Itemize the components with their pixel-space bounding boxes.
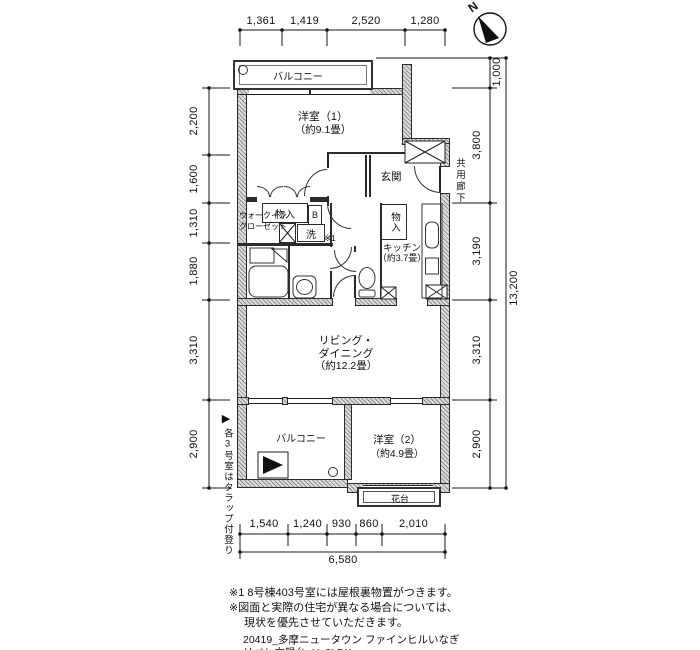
wall-mid-2 bbox=[355, 298, 397, 306]
hatch-marker-icon bbox=[258, 452, 288, 478]
dim-left-1: 1,600 bbox=[188, 157, 200, 201]
room-label-wic-2: クローゼット bbox=[239, 221, 287, 232]
dim-bottom-0: 1,540 bbox=[242, 518, 286, 530]
room-label-balcony-top: バルコニー bbox=[258, 68, 338, 83]
wash-label: 洗 bbox=[306, 226, 316, 241]
washbasin-icon bbox=[293, 276, 316, 298]
wall-balcony-rail bbox=[237, 479, 348, 488]
wall-bath-top bbox=[237, 243, 333, 246]
water-heater-box: B bbox=[308, 205, 322, 225]
sliding-door-bedroom2 bbox=[391, 398, 422, 404]
living-door-arc bbox=[333, 275, 355, 297]
room-label-living-size: （約12.2畳） bbox=[302, 358, 390, 373]
genkan-step-line-2 bbox=[369, 155, 371, 197]
storage-box-2: 物入 bbox=[381, 204, 407, 240]
dim-left-2: 1,310 bbox=[188, 201, 200, 245]
dim-right-2: 3,190 bbox=[471, 229, 483, 273]
dim-right-total: 13,200 bbox=[508, 262, 520, 314]
room-label-wic-1: ウォークイン bbox=[239, 210, 287, 221]
dim-left-3: 1,880 bbox=[188, 249, 200, 293]
footnote-2: ※図面と実際の住宅が異なる場合については、 bbox=[229, 599, 458, 615]
wall-bath-wash bbox=[288, 246, 290, 298]
wall-bedroom1-bottom-a bbox=[247, 197, 257, 202]
dim-left-4: 3,310 bbox=[188, 328, 200, 372]
wall-bedroom1-right-a bbox=[327, 152, 329, 168]
compass-icon bbox=[474, 13, 506, 45]
wall-ld-bottom-4 bbox=[422, 397, 450, 405]
dim-right-0: 1,000 bbox=[491, 50, 503, 94]
genkan-step-line-1 bbox=[365, 155, 367, 197]
bath-counter bbox=[250, 248, 274, 263]
bedroom1-door-arc bbox=[304, 169, 327, 196]
closet-door-arc-3 bbox=[284, 186, 297, 197]
room-label-kitchen-size: （約3.7畳） bbox=[372, 251, 432, 264]
wall-right-main bbox=[440, 193, 450, 488]
room-label-entrance: 玄関 bbox=[376, 169, 406, 184]
side-note-marker: ▶ bbox=[218, 412, 234, 425]
wall-ld-bottom-3 bbox=[332, 397, 391, 405]
dim-top-1: 1,419 bbox=[282, 15, 327, 27]
dim-left-5: 2,900 bbox=[188, 422, 200, 466]
dim-top-2: 2,520 bbox=[344, 15, 388, 27]
kitchen-sink-icon bbox=[426, 222, 439, 248]
room-label-flower-stand: 花台 bbox=[381, 492, 419, 505]
wall-mid-1 bbox=[237, 298, 333, 306]
storage-box-2-label: 物入 bbox=[387, 212, 401, 233]
water-heater-label: B bbox=[312, 210, 318, 220]
side-note-text: 各3号室はタラップ付登り bbox=[220, 428, 234, 606]
plan-title-line-2: リベレ向陽台_U_2LDK bbox=[243, 645, 352, 650]
floor-plan-page: 物入 B 洗 物入 bbox=[0, 0, 700, 650]
room-label-balcony-bottom: バルコニー bbox=[266, 430, 336, 445]
dim-bottom-3: 860 bbox=[348, 518, 390, 530]
footnote-3: 現状を優先させていただきます。 bbox=[244, 614, 408, 630]
dim-top-0: 1,361 bbox=[239, 15, 283, 27]
bath-door-triangle bbox=[272, 249, 287, 262]
dim-bottom-4: 2,010 bbox=[391, 518, 436, 530]
wall-left bbox=[237, 88, 247, 488]
room-label-corridor: 共用廊下 bbox=[452, 158, 466, 220]
top-dim-ticks bbox=[240, 30, 445, 46]
dim-bottom-total: 6,580 bbox=[320, 554, 366, 566]
dim-right-4: 2,900 bbox=[471, 422, 483, 466]
wall-genkan-top bbox=[327, 152, 405, 154]
bathtub-icon bbox=[249, 266, 288, 297]
toilet-icon bbox=[359, 268, 375, 289]
note-ref-marker: ※1 bbox=[320, 233, 340, 244]
closet-door-arc-2 bbox=[270, 186, 283, 197]
balcony-drain-icon-bottom bbox=[329, 468, 338, 477]
wall-ld-bottom-1 bbox=[237, 397, 249, 405]
compass-north-label: N bbox=[462, 0, 485, 18]
wall-mid-3 bbox=[427, 298, 450, 306]
toilet-door-arc bbox=[334, 250, 356, 272]
dim-right-3: 3,310 bbox=[471, 328, 483, 372]
wall-top-right-stub bbox=[402, 64, 412, 145]
wall-balcony-divider bbox=[344, 400, 352, 480]
room-label-bedroom1-size: （約9.1畳） bbox=[284, 122, 362, 137]
closet-door-arc-1 bbox=[257, 186, 270, 197]
window-ld-1 bbox=[249, 398, 282, 404]
wall-hall-left-b bbox=[330, 271, 332, 298]
front-door-arc bbox=[414, 166, 441, 193]
dim-top-3: 1,280 bbox=[403, 15, 447, 27]
footnote-1: ※1 8号棟403号室には屋根裏物置がつきます。 bbox=[229, 584, 458, 600]
dim-right-1: 3,800 bbox=[471, 123, 483, 167]
floor-plan-drawing bbox=[0, 0, 700, 650]
window-ld-2 bbox=[288, 398, 332, 404]
dim-left-0: 2,200 bbox=[188, 99, 200, 143]
room-label-bedroom2-size: （約4.9畳） bbox=[362, 445, 432, 460]
wall-right-upper bbox=[440, 143, 450, 167]
wall-bedroom1-bottom-b bbox=[310, 197, 327, 202]
